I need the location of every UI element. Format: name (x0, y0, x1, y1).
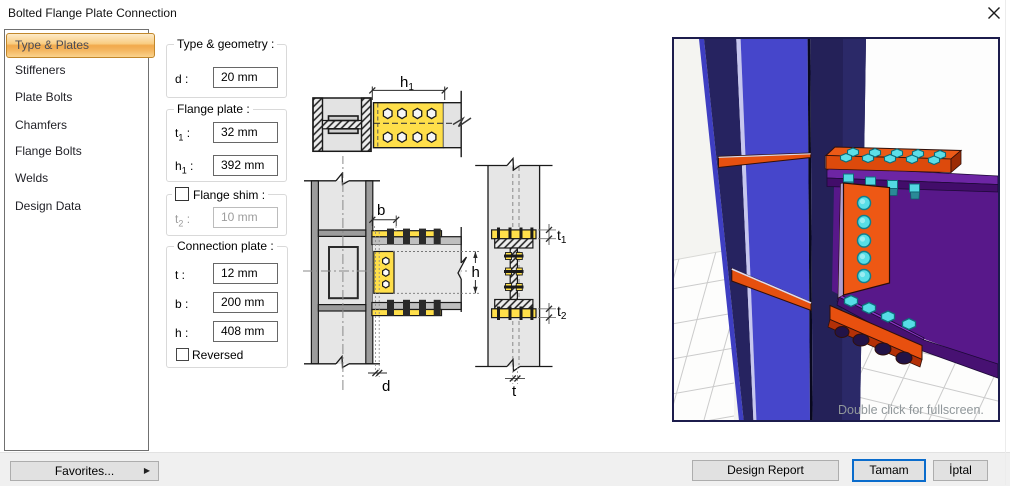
svg-text:b: b (377, 202, 385, 219)
svg-text:h: h (472, 264, 480, 281)
svg-text:t: t (512, 383, 517, 400)
svg-text:d: d (382, 378, 390, 395)
svg-text:t1: t1 (557, 227, 567, 246)
svg-text:t2: t2 (557, 303, 567, 322)
svg-text:Double click for fullscreen.: Double click for fullscreen. (838, 403, 984, 417)
svg-text:h1: h1 (400, 74, 414, 93)
